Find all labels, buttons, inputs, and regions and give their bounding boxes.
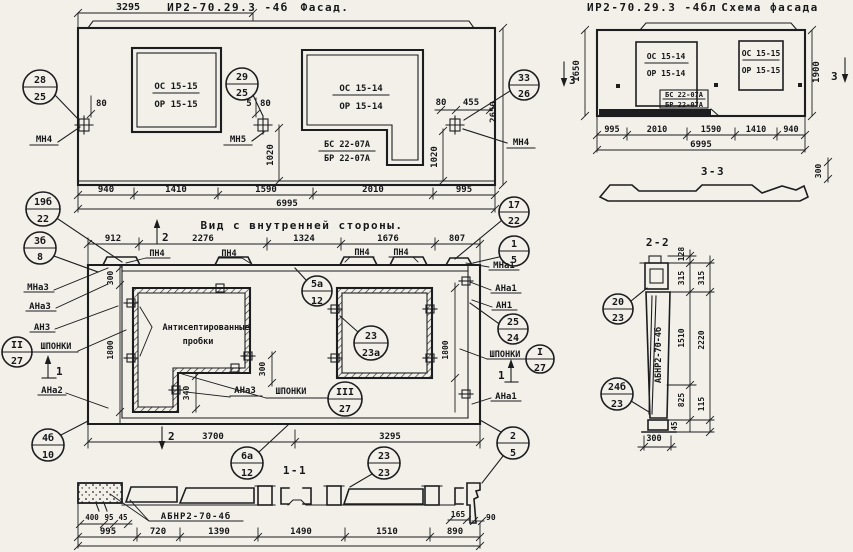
section-3-3-profile bbox=[600, 185, 808, 201]
s11-dim-720: 720 bbox=[150, 527, 166, 537]
schema-window1-top: ОС 15-14 bbox=[647, 52, 686, 61]
dim-1020-right-line bbox=[439, 127, 446, 184]
dim-95: 95 bbox=[104, 513, 113, 522]
schema-window1-bottom: ОР 15-14 bbox=[647, 69, 686, 78]
opening-left bbox=[133, 288, 250, 412]
inner-dim-1800-left: 1800 bbox=[106, 340, 115, 359]
facade-dim-total: 6995 bbox=[276, 199, 298, 209]
node-III-27-top: III bbox=[336, 387, 354, 398]
section-1-1-bottom-dims bbox=[74, 503, 483, 550]
label-ana2: АНа2 bbox=[41, 386, 63, 396]
inner-right-vdim bbox=[451, 283, 458, 412]
facade-view: 3295 ИР2-70.29.3 -4б Фасад. ОС 15-15 ОР … bbox=[23, 1, 539, 213]
s22-dim-45: 45 bbox=[670, 421, 679, 430]
inner-dim-300-left: 300 bbox=[106, 271, 115, 286]
schema-dim-1590: 1590 bbox=[701, 125, 721, 135]
dim-5: 5 bbox=[246, 99, 251, 109]
node-I-27-bottom: 27 bbox=[534, 363, 546, 374]
s22-dim-115: 115 bbox=[697, 397, 706, 412]
inner-dim-2276: 2276 bbox=[192, 234, 214, 244]
section-3-3-dim bbox=[824, 158, 831, 183]
schema-dim-total: 6995 bbox=[690, 140, 712, 150]
dim-165: 165 bbox=[451, 510, 466, 519]
facade-dim-2010: 2010 bbox=[362, 185, 384, 195]
s22-dim-315a: 315 bbox=[677, 271, 686, 286]
node-6a-12-bottom: 12 bbox=[241, 468, 253, 479]
node-23-23a-top: 23 bbox=[365, 331, 377, 342]
node-2-5: 2 5 bbox=[480, 420, 529, 483]
facade-dim-940: 940 bbox=[98, 185, 114, 195]
inner-dim-1676: 1676 bbox=[377, 234, 399, 244]
blueprint-canvas: 3295 ИР2-70.29.3 -4б Фасад. ОС 15-15 ОР … bbox=[0, 0, 853, 552]
schema-section3-left-label: 3 bbox=[569, 74, 577, 87]
node-17-22-bottom: 22 bbox=[508, 216, 520, 227]
facade-dim-995: 995 bbox=[456, 185, 472, 195]
node-4b-10: 4б 10 bbox=[32, 421, 88, 461]
label-ana1-2: АНа1 bbox=[495, 392, 517, 402]
node-29-25-top: 29 bbox=[236, 72, 248, 83]
schema-mark: ИР2-70.29.3 -4бл bbox=[587, 1, 717, 14]
node-23-23: 23 23 bbox=[350, 447, 400, 487]
s22-dim-1510: 1510 bbox=[677, 328, 686, 347]
anchor-right-icon bbox=[446, 116, 464, 134]
ana2-leader bbox=[38, 393, 108, 408]
section-3-3-dim-300: 300 bbox=[814, 164, 823, 179]
label-an1: АН1 bbox=[496, 301, 512, 311]
anchor-mn5-label: МН5 bbox=[230, 135, 246, 145]
node-25-24-top: 25 bbox=[507, 317, 519, 328]
node-29-25: 29 25 bbox=[226, 68, 263, 116]
label-ana3: АНа3 bbox=[29, 302, 51, 312]
window2-label-bottom: ОР 15-14 bbox=[339, 102, 383, 112]
window1-label-bottom: ОР 15-15 bbox=[154, 100, 197, 110]
node-19b-22-bottom: 22 bbox=[37, 214, 49, 225]
section-1-1-mark: АБНР2-70-4б bbox=[161, 511, 232, 522]
inner-view: Вид с внутренней стороны. 912 2276 1324 … bbox=[2, 192, 554, 483]
label-mna3: МНа3 bbox=[27, 283, 49, 293]
s22-dim-315b: 315 bbox=[697, 271, 706, 286]
section-1-1-profile bbox=[96, 483, 480, 523]
section1-mark-left-label: 1 bbox=[56, 365, 64, 378]
door-label-top: БС 22-07А bbox=[324, 140, 370, 150]
opening-left-inner bbox=[138, 293, 245, 407]
node-23-23a-bottom: 23а bbox=[362, 348, 380, 359]
facade-dim-3295: 3295 bbox=[116, 2, 140, 13]
node-20-23-top: 20 bbox=[612, 297, 624, 308]
schema-dim-1900: 1900 bbox=[812, 61, 822, 83]
schema-window2-bottom: ОР 15-15 bbox=[742, 66, 781, 75]
s11-dim-995: 995 bbox=[100, 527, 116, 537]
opening-left-hatch bbox=[133, 288, 250, 412]
node-20-23: 20 23 bbox=[603, 288, 647, 324]
node-5a-12-bottom: 12 bbox=[311, 296, 323, 307]
node-23-23-top: 23 bbox=[378, 451, 390, 462]
node-3b-8-top: 3б bbox=[34, 235, 46, 247]
schema-window2-top: ОС 15-15 bbox=[742, 49, 781, 58]
section2-mark-top bbox=[154, 219, 160, 244]
schema-title: Схема фасада bbox=[721, 1, 818, 14]
inner-dim-807: 807 bbox=[449, 234, 465, 244]
label-ana1: АНа1 bbox=[495, 284, 517, 294]
inner-title: Вид с внутренней стороны. bbox=[200, 219, 403, 232]
node-17-22: 17 22 bbox=[455, 197, 529, 259]
node-33-26-top: 33 bbox=[518, 73, 530, 84]
dim-2650: 2650 bbox=[489, 101, 499, 123]
section-2-2-top-detail bbox=[640, 256, 674, 289]
node-5a-12-top: 5а bbox=[311, 279, 323, 290]
note-antiseptic-line2: пробки bbox=[183, 336, 214, 347]
dim-400: 400 bbox=[85, 513, 99, 522]
section2-mark-bottom bbox=[159, 427, 165, 450]
section1-mark-right bbox=[505, 359, 518, 382]
node-24b-23-bottom: 23 bbox=[611, 399, 623, 410]
inner-dim-3700: 3700 bbox=[202, 432, 224, 442]
inner-dim-1800-right: 1800 bbox=[441, 340, 450, 359]
label-mna1: МНа1 bbox=[493, 261, 515, 271]
node-III-27-bottom: 27 bbox=[339, 404, 351, 415]
section2-mark-bottom-label: 2 bbox=[168, 430, 176, 443]
node-II-27: II 27 bbox=[2, 337, 32, 367]
section-1-1-label: 1-1 bbox=[283, 464, 307, 477]
facade-title: Фасад. bbox=[301, 1, 350, 14]
label-shponki-left: ШПОНКИ bbox=[41, 342, 72, 352]
node-33-26-bottom: 26 bbox=[518, 89, 530, 100]
blueprint-sheet: 3295 ИР2-70.29.3 -4б Фасад. ОС 15-15 ОР … bbox=[0, 0, 853, 552]
anchor-mn4-right-label: МН4 bbox=[513, 138, 530, 148]
door-label-bottom: БР 22-07А bbox=[324, 154, 370, 164]
schema-view: ИР2-70.29.3 -4бл Схема фасада ОС 15-14 О… bbox=[561, 1, 848, 201]
dim-2650-line bbox=[499, 24, 506, 188]
node-20-23-bottom: 23 bbox=[612, 313, 624, 324]
section1-mark-right-label: 1 bbox=[498, 369, 506, 382]
section-2-2: 2-2 АБНР2-70-4б 20 23 24б 23 128 315 bbox=[601, 236, 714, 451]
inner-dim-340: 340 bbox=[182, 386, 191, 401]
s22-dim-128: 128 bbox=[677, 247, 686, 262]
node-6a-12: 6а 12 bbox=[231, 425, 288, 479]
node-25-24-bottom: 24 bbox=[507, 333, 519, 344]
node-24b-23-top: 24б bbox=[608, 381, 626, 393]
node-28-25-top: 28 bbox=[34, 75, 46, 86]
inner-dim-3295: 3295 bbox=[379, 432, 401, 442]
anchor-mid-icon bbox=[254, 116, 272, 134]
inner-dim-912: 912 bbox=[105, 234, 121, 244]
inner-top-dims bbox=[84, 238, 483, 265]
facade-mark: ИР2-70.29.3 -4б bbox=[167, 1, 289, 14]
node-29-25-bottom: 25 bbox=[236, 88, 248, 99]
s11-dim-890: 890 bbox=[447, 527, 463, 537]
section1-mark-left bbox=[42, 355, 56, 378]
label-an3: АН3 bbox=[34, 323, 50, 333]
node-1-5-top: 1 bbox=[511, 239, 517, 250]
schema-dim-995: 995 bbox=[604, 125, 619, 135]
schema-section3-right-label: 3 bbox=[831, 70, 839, 83]
schema-dim-1410: 1410 bbox=[746, 125, 766, 135]
schema-dim-2010: 2010 bbox=[647, 125, 667, 135]
node-II-27-bottom: 27 bbox=[11, 356, 23, 367]
label-shponki-mid: ШПОНКИ bbox=[276, 387, 307, 397]
node-33-26: 33 26 bbox=[464, 70, 539, 120]
inner-dim-1324: 1324 bbox=[293, 234, 315, 244]
anchor-left-dim bbox=[87, 96, 94, 118]
schema-section3-left bbox=[561, 62, 567, 87]
dim-1020-left: 1020 bbox=[266, 144, 276, 166]
dim-45: 45 bbox=[118, 513, 127, 522]
node-3b-8-bottom: 8 bbox=[37, 252, 43, 263]
node-2-5-top: 2 bbox=[510, 431, 516, 442]
schema-dim-940: 940 bbox=[783, 125, 798, 135]
node-28-25: 28 25 bbox=[23, 70, 79, 120]
node-23-23-bottom: 23 bbox=[378, 468, 390, 479]
concrete-block bbox=[78, 483, 122, 503]
schema-door-top: БС 22-07А bbox=[665, 91, 704, 99]
schema-bottom-strip bbox=[599, 109, 711, 115]
dim-80-right: 80 bbox=[436, 98, 447, 108]
node-23-23a: 23 23а bbox=[340, 316, 388, 360]
node-17-22-top: 17 bbox=[508, 200, 520, 211]
node-28-25-bottom: 25 bbox=[34, 92, 46, 103]
plate-pn4-label-1: ПН4 bbox=[149, 249, 164, 259]
s11-dim-1490: 1490 bbox=[290, 527, 312, 537]
node-5a-12: 5а 12 bbox=[295, 268, 332, 307]
node-2-5-bottom: 5 bbox=[510, 448, 516, 459]
dim-455: 455 bbox=[463, 98, 479, 108]
s22-dim-300: 300 bbox=[646, 434, 661, 444]
inner-dim-300-mid: 300 bbox=[258, 362, 267, 377]
node-4b-10-top: 4б bbox=[42, 432, 54, 444]
note-antiseptic-line1: Антисептированные bbox=[163, 323, 250, 333]
s22-dim-2220: 2220 bbox=[697, 330, 706, 349]
dim-80-left: 80 bbox=[96, 99, 107, 109]
s22-dim-825: 825 bbox=[677, 393, 686, 408]
inner-dim-300m-line bbox=[268, 351, 275, 386]
dim-1020-right: 1020 bbox=[430, 146, 440, 168]
window1-label-top: ОС 15-15 bbox=[154, 82, 197, 92]
s11-dim-1510: 1510 bbox=[376, 527, 398, 537]
dim-90: 90 bbox=[486, 513, 496, 522]
node-6a-12-top: 6а bbox=[241, 451, 253, 462]
node-24b-23: 24б 23 bbox=[601, 378, 649, 412]
section-2-2-label: 2-2 bbox=[646, 236, 670, 249]
node-I-27-top: I bbox=[537, 347, 543, 358]
schema-anchor-dots bbox=[616, 83, 802, 88]
node-II-27-top: II bbox=[11, 340, 23, 351]
s11-dim-1390: 1390 bbox=[208, 527, 230, 537]
dim-1020-left-line bbox=[275, 124, 282, 184]
facade-dim-1590: 1590 bbox=[255, 185, 277, 195]
dim-80-mid: 80 bbox=[260, 99, 271, 109]
schema-section3-right bbox=[842, 58, 848, 83]
label-shponki-right: ШПОНКИ bbox=[490, 350, 521, 360]
section-3-3-label: 3-3 bbox=[701, 165, 725, 178]
section-2-2-mark: АБНР2-70-4б bbox=[653, 327, 664, 383]
node-4b-10-bottom: 10 bbox=[42, 450, 54, 461]
section2-mark-top-label: 2 bbox=[162, 231, 170, 244]
window2-label-top: ОС 15-14 bbox=[339, 84, 383, 94]
facade-dim-1410: 1410 bbox=[165, 185, 187, 195]
anchor-mn4-left-label: МН4 bbox=[36, 135, 53, 145]
inner-bottom-dims bbox=[84, 424, 483, 448]
schema-left-dim-line bbox=[581, 26, 588, 119]
node-19b-22-top: 19б bbox=[34, 196, 52, 208]
note-leaders bbox=[140, 307, 152, 356]
section-1-1: 1-1 23 23 АБНР2-70-4б 400 95 45 16 bbox=[74, 447, 495, 550]
schema-door-bottom: БР 22-07А bbox=[665, 101, 704, 109]
